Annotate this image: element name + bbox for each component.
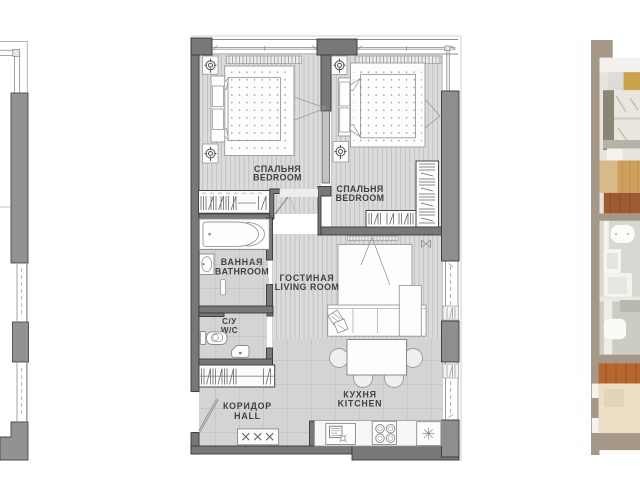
svg-text:HALL: HALL (234, 411, 261, 421)
svg-text:КОРИДОР: КОРИДОР (223, 401, 272, 411)
svg-text:LIVING ROOM: LIVING ROOM (275, 282, 340, 292)
svg-text:С/У: С/У (222, 317, 237, 326)
svg-text:BATHROOM: BATHROOM (215, 267, 269, 277)
svg-text:BEDROOM: BEDROOM (253, 173, 302, 183)
svg-text:KITCHEN: KITCHEN (338, 399, 383, 409)
svg-text:ВАННАЯ: ВАННАЯ (221, 257, 263, 267)
svg-text:BEDROOM: BEDROOM (336, 193, 385, 203)
